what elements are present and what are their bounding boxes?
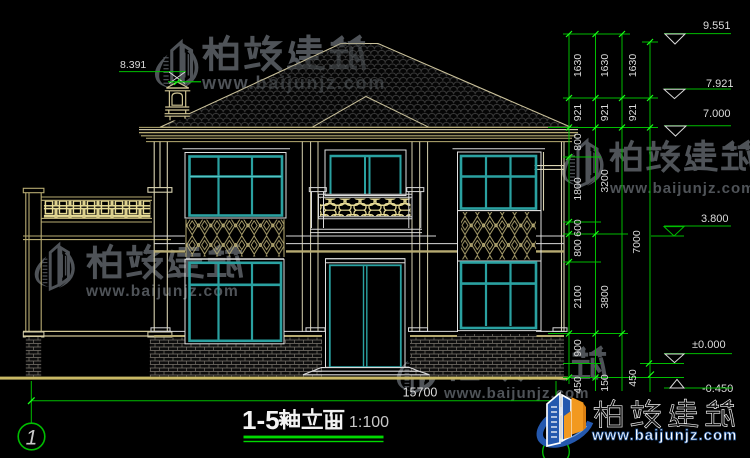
svg-text:1:100: 1:100 xyxy=(349,414,389,431)
svg-text:±0.000: ±0.000 xyxy=(692,339,726,351)
svg-text:1630: 1630 xyxy=(599,54,611,78)
svg-text:800: 800 xyxy=(572,239,584,257)
svg-text:800: 800 xyxy=(572,133,584,151)
svg-text:1630: 1630 xyxy=(572,54,584,78)
svg-text:1630: 1630 xyxy=(627,54,639,78)
svg-text:1800: 1800 xyxy=(572,177,584,201)
svg-text:7000: 7000 xyxy=(631,230,643,254)
svg-text:8.391: 8.391 xyxy=(120,59,146,71)
svg-text:1: 1 xyxy=(26,427,38,450)
svg-text:3.800: 3.800 xyxy=(701,213,729,225)
svg-text:15700: 15700 xyxy=(403,386,438,400)
svg-text:921: 921 xyxy=(572,104,584,122)
svg-text:921: 921 xyxy=(599,104,611,122)
svg-text:-0.450: -0.450 xyxy=(702,383,733,395)
svg-text:7.000: 7.000 xyxy=(703,108,731,120)
svg-text:2100: 2100 xyxy=(572,285,584,309)
svg-text:450: 450 xyxy=(627,369,639,387)
svg-text:7.921: 7.921 xyxy=(706,78,734,90)
svg-text:900: 900 xyxy=(572,339,584,357)
svg-text:3200: 3200 xyxy=(599,169,611,193)
svg-text:3800: 3800 xyxy=(599,285,611,309)
svg-text:9.551: 9.551 xyxy=(703,20,731,32)
svg-text:450: 450 xyxy=(572,376,584,394)
svg-text:150: 150 xyxy=(599,374,611,392)
svg-text:600: 600 xyxy=(572,219,584,237)
svg-text:www.baijunjz.com: www.baijunjz.com xyxy=(609,180,750,197)
svg-text:1-5: 1-5 xyxy=(242,405,280,435)
svg-text:www.baijunjz.com: www.baijunjz.com xyxy=(591,427,737,444)
svg-text:921: 921 xyxy=(627,104,639,122)
